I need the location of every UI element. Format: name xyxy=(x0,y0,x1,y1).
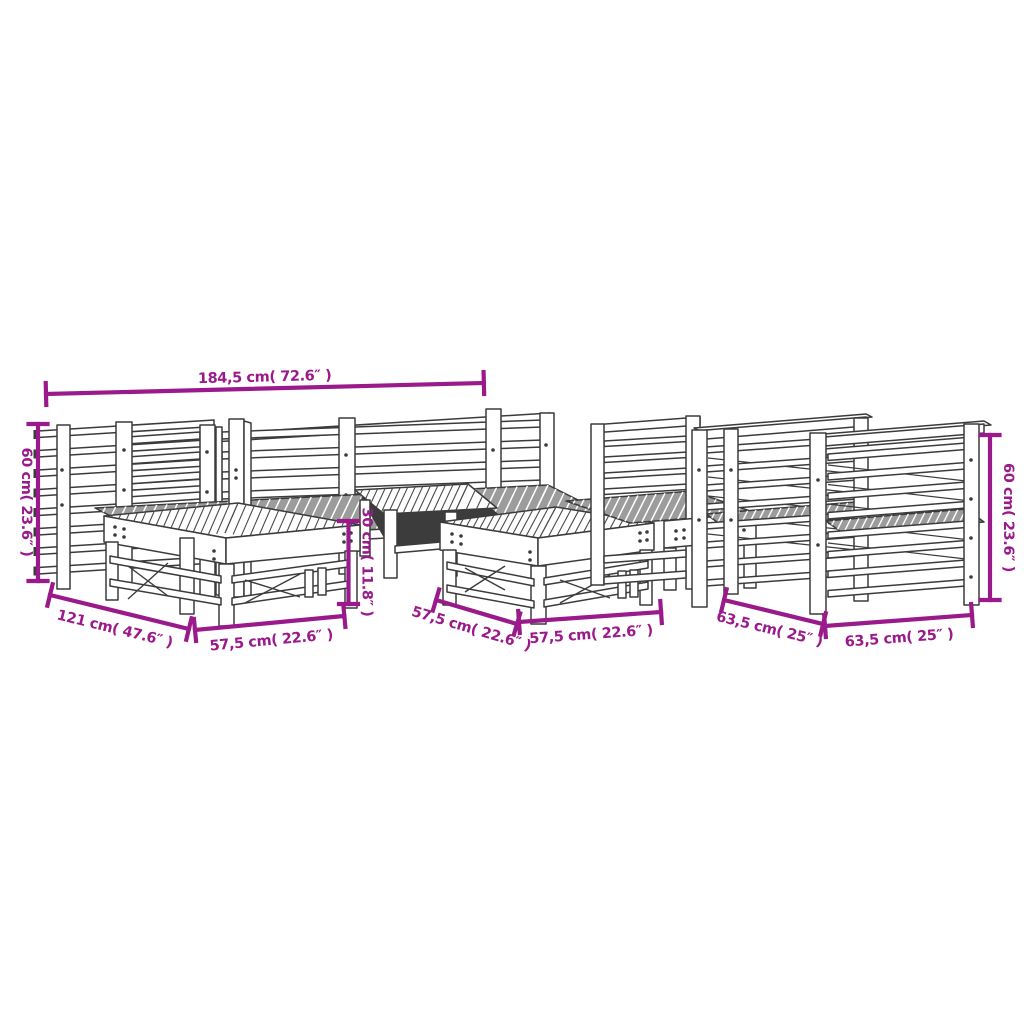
dimension-end-cap xyxy=(433,589,439,610)
dimension-label-footstool-width-2: 57,5 cm( 22.6″ ) xyxy=(529,623,654,648)
dim-chair-width: 63,5 cm( 25″ ) xyxy=(824,604,974,652)
dimension-line xyxy=(825,615,972,626)
dimension-end-cap xyxy=(660,601,662,623)
dimension-label-chair-depth: 63,5 cm( 25″ ) xyxy=(715,609,825,650)
footstool-left xyxy=(91,503,360,626)
dimension-end-cap xyxy=(484,372,485,394)
dim-height-left: 60 cm( 23.6″ ) xyxy=(18,424,48,581)
dimension-label-footstool-width: 57,5 cm( 22.6″ ) xyxy=(209,627,334,655)
dim-overall-width: 184,5 cm( 72.6″ ) xyxy=(46,364,485,405)
dimension-label-chair-width: 63,5 cm( 25″ ) xyxy=(844,626,954,650)
dim-footstool-width: 57,5 cm( 22.6″ ) xyxy=(194,605,347,656)
dimension-label-overall-width: 184,5 cm( 72.6″ ) xyxy=(198,368,332,387)
dimension-end-cap xyxy=(971,604,973,626)
dimension-end-cap xyxy=(721,589,726,610)
dimension-end-cap xyxy=(343,605,345,627)
armchair-right xyxy=(810,421,991,614)
dimension-label-height-left: 60 cm( 23.6″ ) xyxy=(18,448,34,557)
furniture-diagram: 184,5 cm( 72.6″ ) 60 cm( 23.6″ ) 121 cm(… xyxy=(0,0,1024,1024)
product-dimension-image: 184,5 cm( 72.6″ ) 60 cm( 23.6″ ) 121 cm(… xyxy=(0,0,1024,1024)
dimension-label-footstool-height: 30 cm( 11.8″ ) xyxy=(359,508,375,617)
dim-height-right: 60 cm( 23.6″ ) xyxy=(981,435,1017,600)
dimension-end-cap xyxy=(824,615,826,637)
dimension-label-height-right: 60 cm( 23.6″ ) xyxy=(1000,463,1016,572)
dimension-end-cap xyxy=(46,383,47,405)
dimension-end-cap xyxy=(194,619,196,641)
dimension-label-sofa-depth: 121 cm( 47.6″ ) xyxy=(55,607,174,651)
dimension-end-cap xyxy=(186,618,191,639)
dimension-end-cap xyxy=(518,611,520,633)
dimension-end-cap xyxy=(47,584,52,605)
